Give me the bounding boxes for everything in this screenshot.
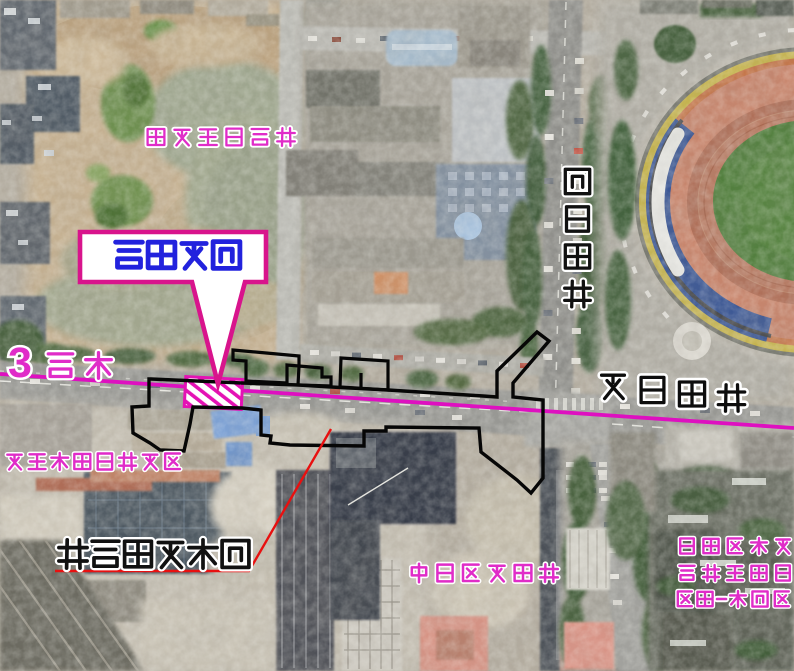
svg-text:3: 3 <box>8 339 32 387</box>
